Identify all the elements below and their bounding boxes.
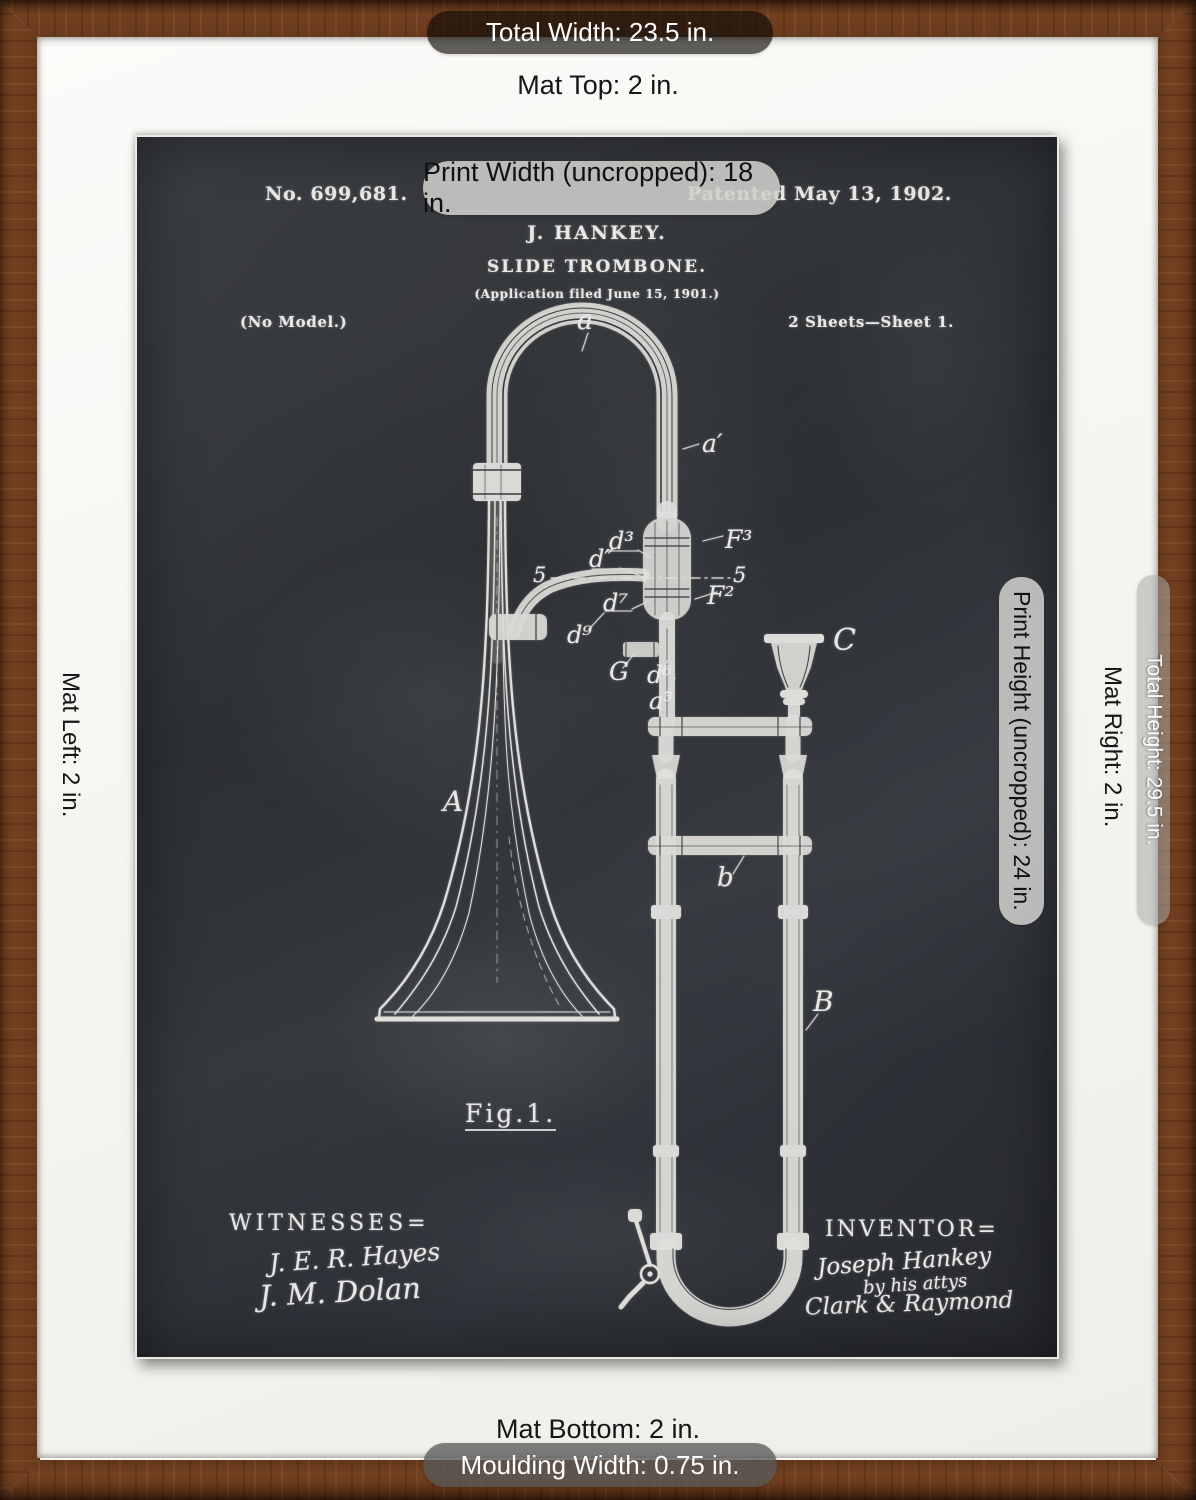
water-key bbox=[621, 1209, 659, 1307]
sheets-note: 2 Sheets—Sheet 1. bbox=[788, 313, 954, 331]
witnesses-heading: WITNESSES= bbox=[229, 1211, 430, 1236]
application-line: (Application filed June 15, 1901.) bbox=[137, 287, 1057, 301]
moulding-width-pill: Moulding Width: 0.75 in. bbox=[423, 1443, 777, 1487]
print-width-pill: Print Width (uncropped): 18 in. bbox=[423, 161, 780, 215]
total-width-pill: Total Width: 23.5 in. bbox=[427, 11, 773, 54]
mat-right-label: Mat Right: 2 in. bbox=[1098, 666, 1126, 827]
label-d9: d⁹ bbox=[567, 621, 592, 649]
label-d6: d⁶ bbox=[647, 661, 672, 689]
framed-patent-product-photo: No. 699,681. Patented May 13, 1902. J. H… bbox=[0, 0, 1196, 1500]
label-bell-a: A bbox=[443, 785, 463, 818]
mouthpiece bbox=[764, 634, 824, 722]
label-f3: F³ bbox=[725, 525, 752, 554]
no-model-note: (No Model.) bbox=[240, 313, 347, 331]
label-b-big: B bbox=[813, 985, 834, 1018]
label-a: a bbox=[577, 305, 593, 336]
label-d7: d⁷ bbox=[603, 589, 628, 617]
patent-title: SLIDE TROMBONE. bbox=[137, 257, 1057, 277]
label-f2: F² bbox=[707, 581, 734, 610]
slide-section bbox=[648, 717, 812, 1317]
patent-number: No. 699,681. bbox=[265, 183, 408, 205]
mat-top-label: Mat Top: 2 in. bbox=[517, 70, 679, 101]
label-5-right: 5 bbox=[733, 563, 746, 587]
frame-moulding-left bbox=[0, 0, 40, 1500]
label-d-doubleprime: d″ bbox=[589, 545, 613, 573]
inventor-heading: INVENTOR= bbox=[825, 1217, 999, 1242]
inventor-name-heading: J. HANKEY. bbox=[137, 222, 1057, 244]
patent-print: No. 699,681. Patented May 13, 1902. J. H… bbox=[137, 137, 1057, 1357]
label-a-prime: a′ bbox=[702, 429, 723, 458]
label-b-small: b bbox=[717, 863, 734, 893]
mat-left-label: Mat Left: 2 in. bbox=[56, 672, 84, 817]
total-height-pill: Total Height: 29.5 in. bbox=[1137, 575, 1170, 925]
figure-number: Fig.1. bbox=[465, 1099, 556, 1131]
label-5-left: 5 bbox=[533, 563, 546, 587]
print-height-pill: Print Height (uncropped): 24 in. bbox=[999, 577, 1044, 925]
label-g: G bbox=[609, 657, 629, 686]
label-c: C bbox=[833, 623, 856, 658]
label-a3: a³ bbox=[649, 687, 673, 715]
mat-bottom-label: Mat Bottom: 2 in. bbox=[496, 1414, 700, 1445]
